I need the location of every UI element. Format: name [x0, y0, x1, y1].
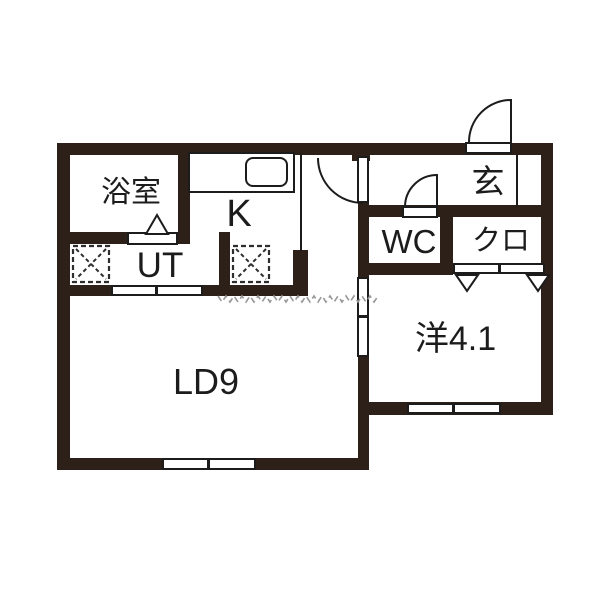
room-label-closet: クロ [468, 224, 534, 258]
room-label-bathroom: 浴室 [88, 176, 174, 210]
closet-folding-door-icon-left [456, 275, 478, 291]
wc-door-arc-icon [405, 175, 437, 207]
floor-plan: 浴室 K 玄 WC クロ UT 洋4.1 LD9 [0, 0, 600, 600]
hall-boundary-hatch-icon [218, 296, 378, 302]
room-label-utility: UT [132, 245, 188, 285]
fridge-space-icon [233, 246, 269, 282]
room-label-western-room: 洋4.1 [408, 319, 503, 359]
room-label-kitchen: K [213, 192, 265, 236]
entrance-door-arc-icon [469, 100, 511, 142]
washer-space-icon [73, 246, 109, 282]
bathroom-folding-door-icon [146, 215, 168, 234]
closet-folding-door-icon-right [527, 275, 549, 291]
symbol-overlay [0, 0, 600, 600]
hall-door-arc-icon [318, 158, 363, 203]
room-label-living-dining: LD9 [168, 361, 244, 403]
room-label-entrance: 玄 [462, 162, 514, 200]
room-label-wc: WC [375, 222, 443, 260]
